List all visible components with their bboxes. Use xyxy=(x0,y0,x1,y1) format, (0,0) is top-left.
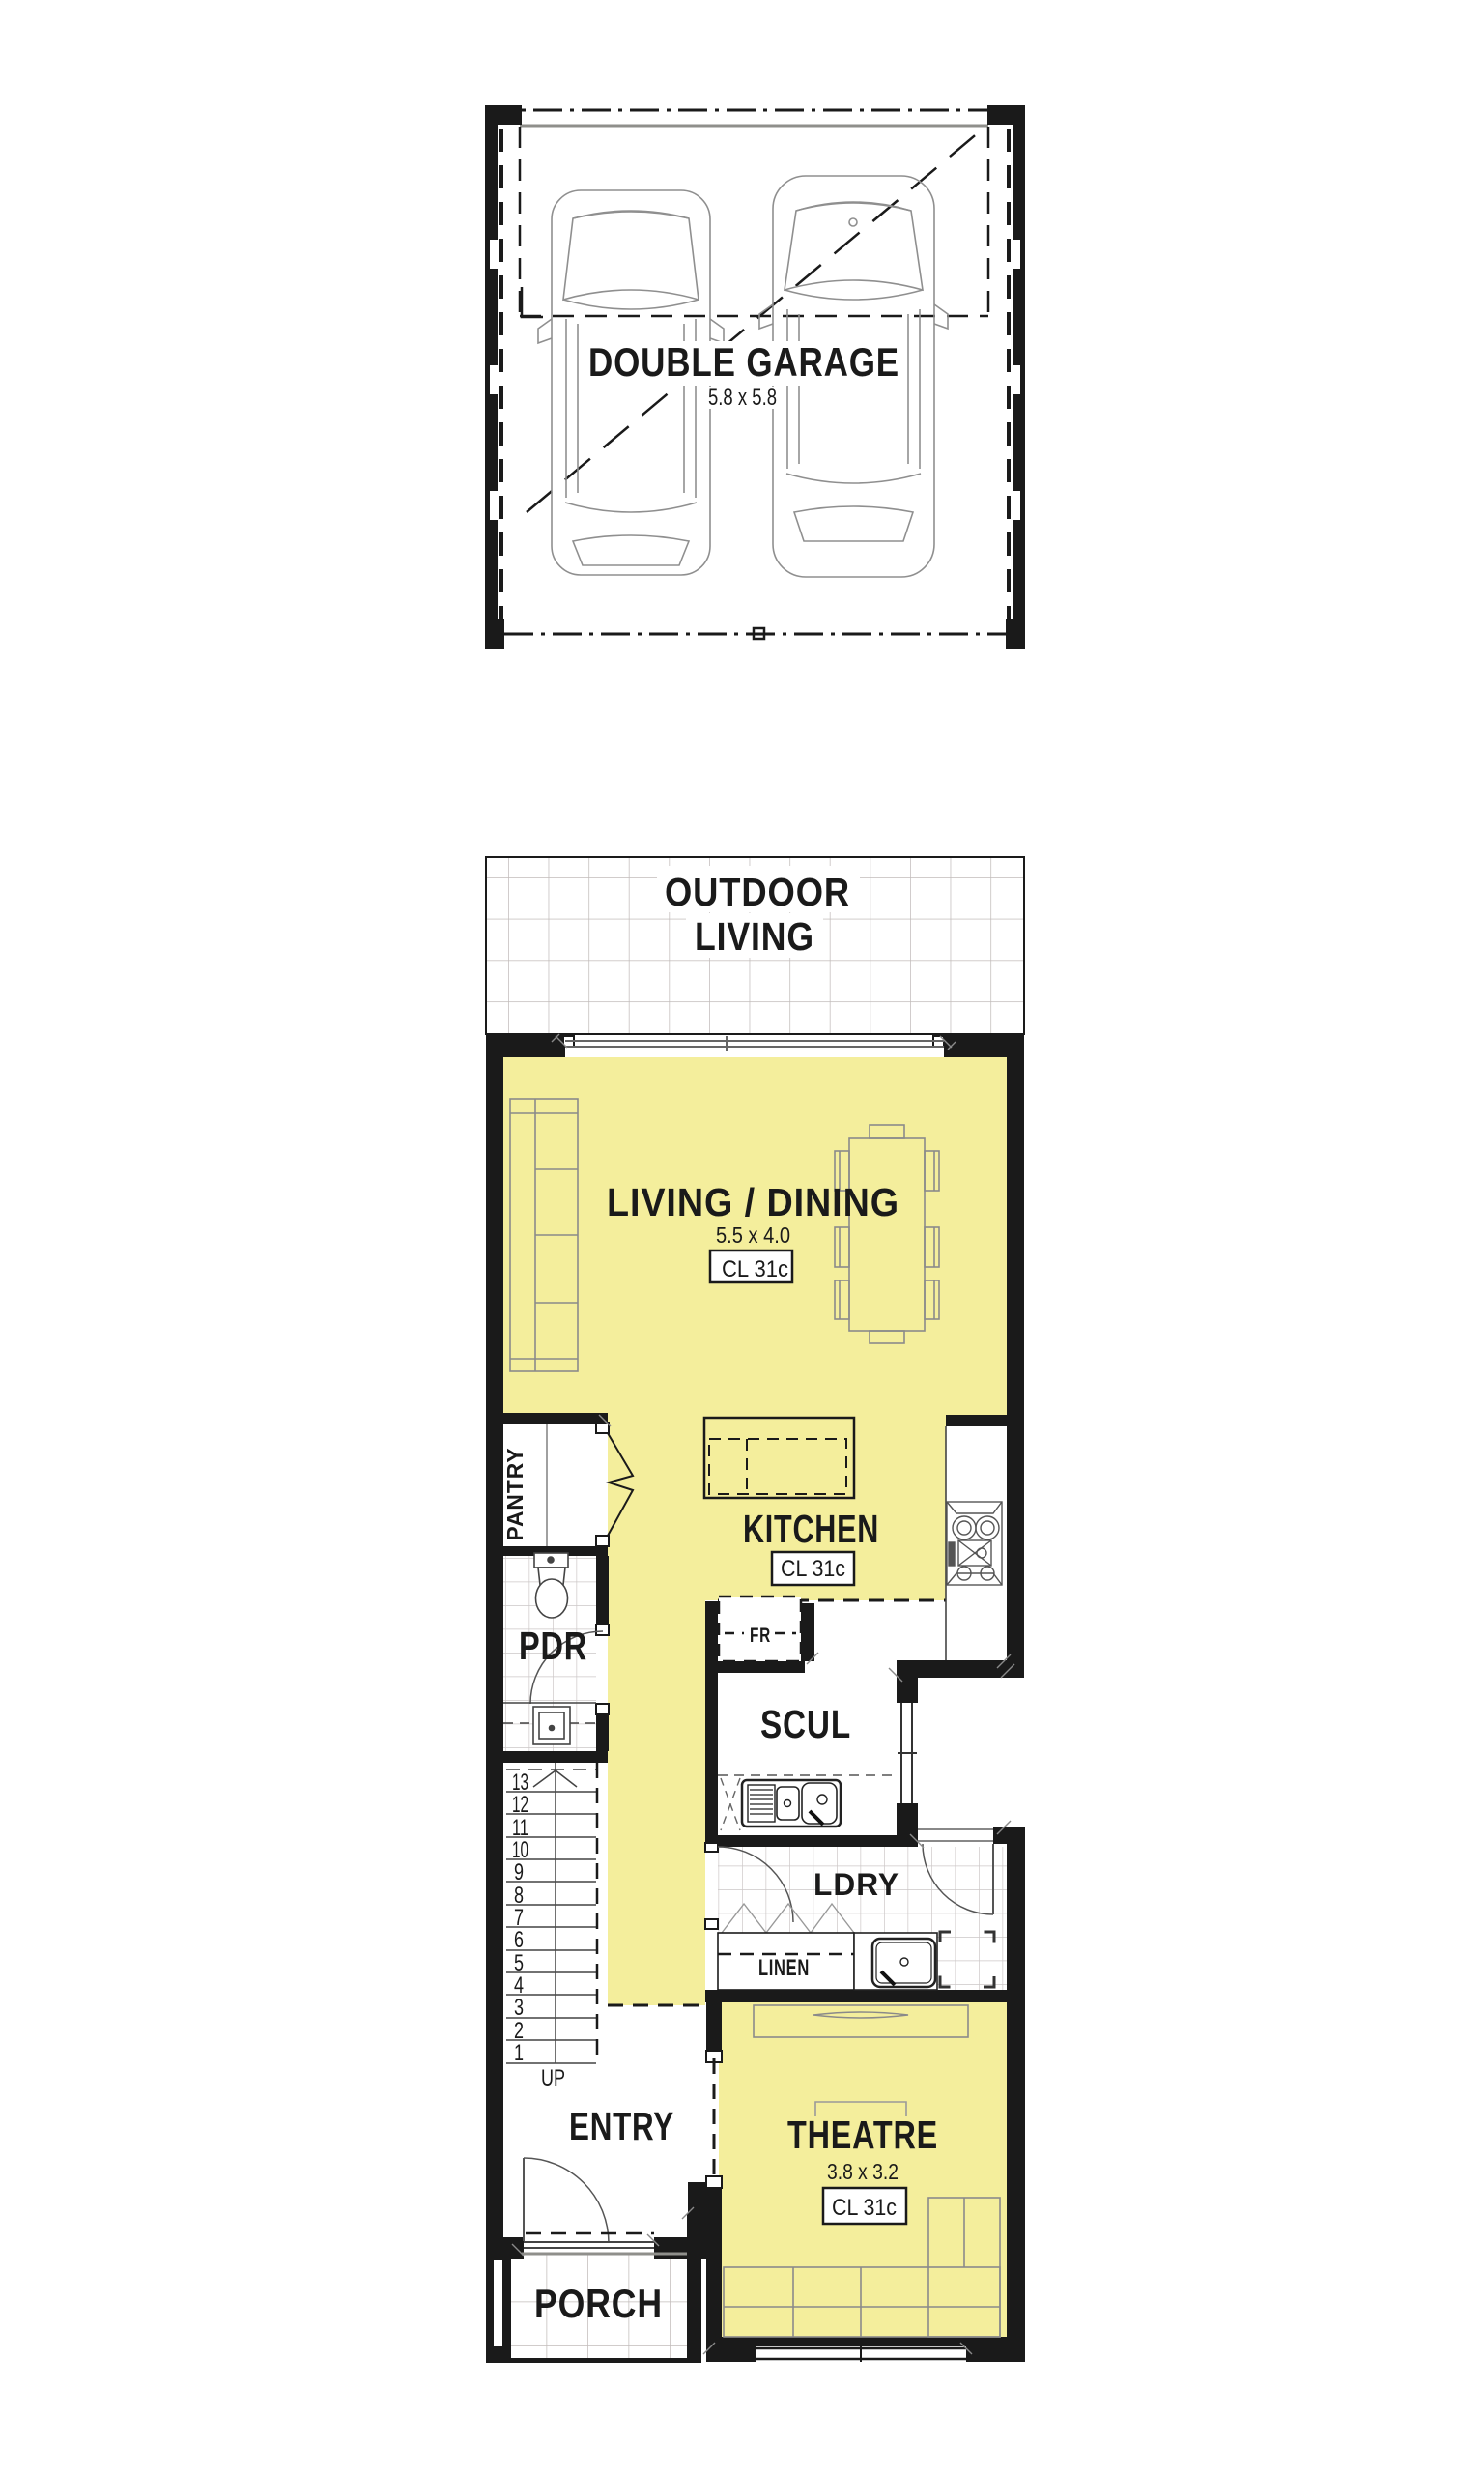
svg-text:5.8 x 5.8: 5.8 x 5.8 xyxy=(708,385,777,411)
svg-text:OUTDOOR: OUTDOOR xyxy=(665,870,850,914)
svg-text:6: 6 xyxy=(514,1927,524,1953)
svg-text:PANTRY: PANTRY xyxy=(502,1448,528,1541)
svg-text:CL 31c: CL 31c xyxy=(832,2195,897,2221)
svg-text:PDR: PDR xyxy=(519,1624,587,1668)
svg-text:3: 3 xyxy=(514,1995,524,2021)
svg-text:LIVING / DINING: LIVING / DINING xyxy=(607,1180,899,1224)
svg-text:3.8 x 3.2: 3.8 x 3.2 xyxy=(827,2159,899,2184)
svg-text:LIVING: LIVING xyxy=(695,914,814,959)
svg-text:SCUL: SCUL xyxy=(760,1702,851,1746)
svg-text:FR: FR xyxy=(750,1625,771,1647)
svg-text:9: 9 xyxy=(514,1859,524,1885)
svg-text:1: 1 xyxy=(514,2040,524,2066)
svg-text:CL 31c: CL 31c xyxy=(781,1556,845,1582)
svg-text:LINEN: LINEN xyxy=(758,1955,810,1981)
svg-text:THEATRE: THEATRE xyxy=(787,2113,938,2157)
svg-text:DOUBLE GARAGE: DOUBLE GARAGE xyxy=(588,339,899,385)
svg-text:UP: UP xyxy=(541,2065,565,2091)
svg-text:5.5 x 4.0: 5.5 x 4.0 xyxy=(716,1223,790,1248)
svg-text:CL 31c: CL 31c xyxy=(722,1256,788,1282)
svg-text:KITCHEN: KITCHEN xyxy=(743,1507,879,1551)
svg-text:ENTRY: ENTRY xyxy=(569,2104,674,2148)
svg-text:PORCH: PORCH xyxy=(534,2281,663,2326)
svg-text:LDRY: LDRY xyxy=(813,1867,899,1902)
svg-text:12: 12 xyxy=(512,1792,528,1818)
